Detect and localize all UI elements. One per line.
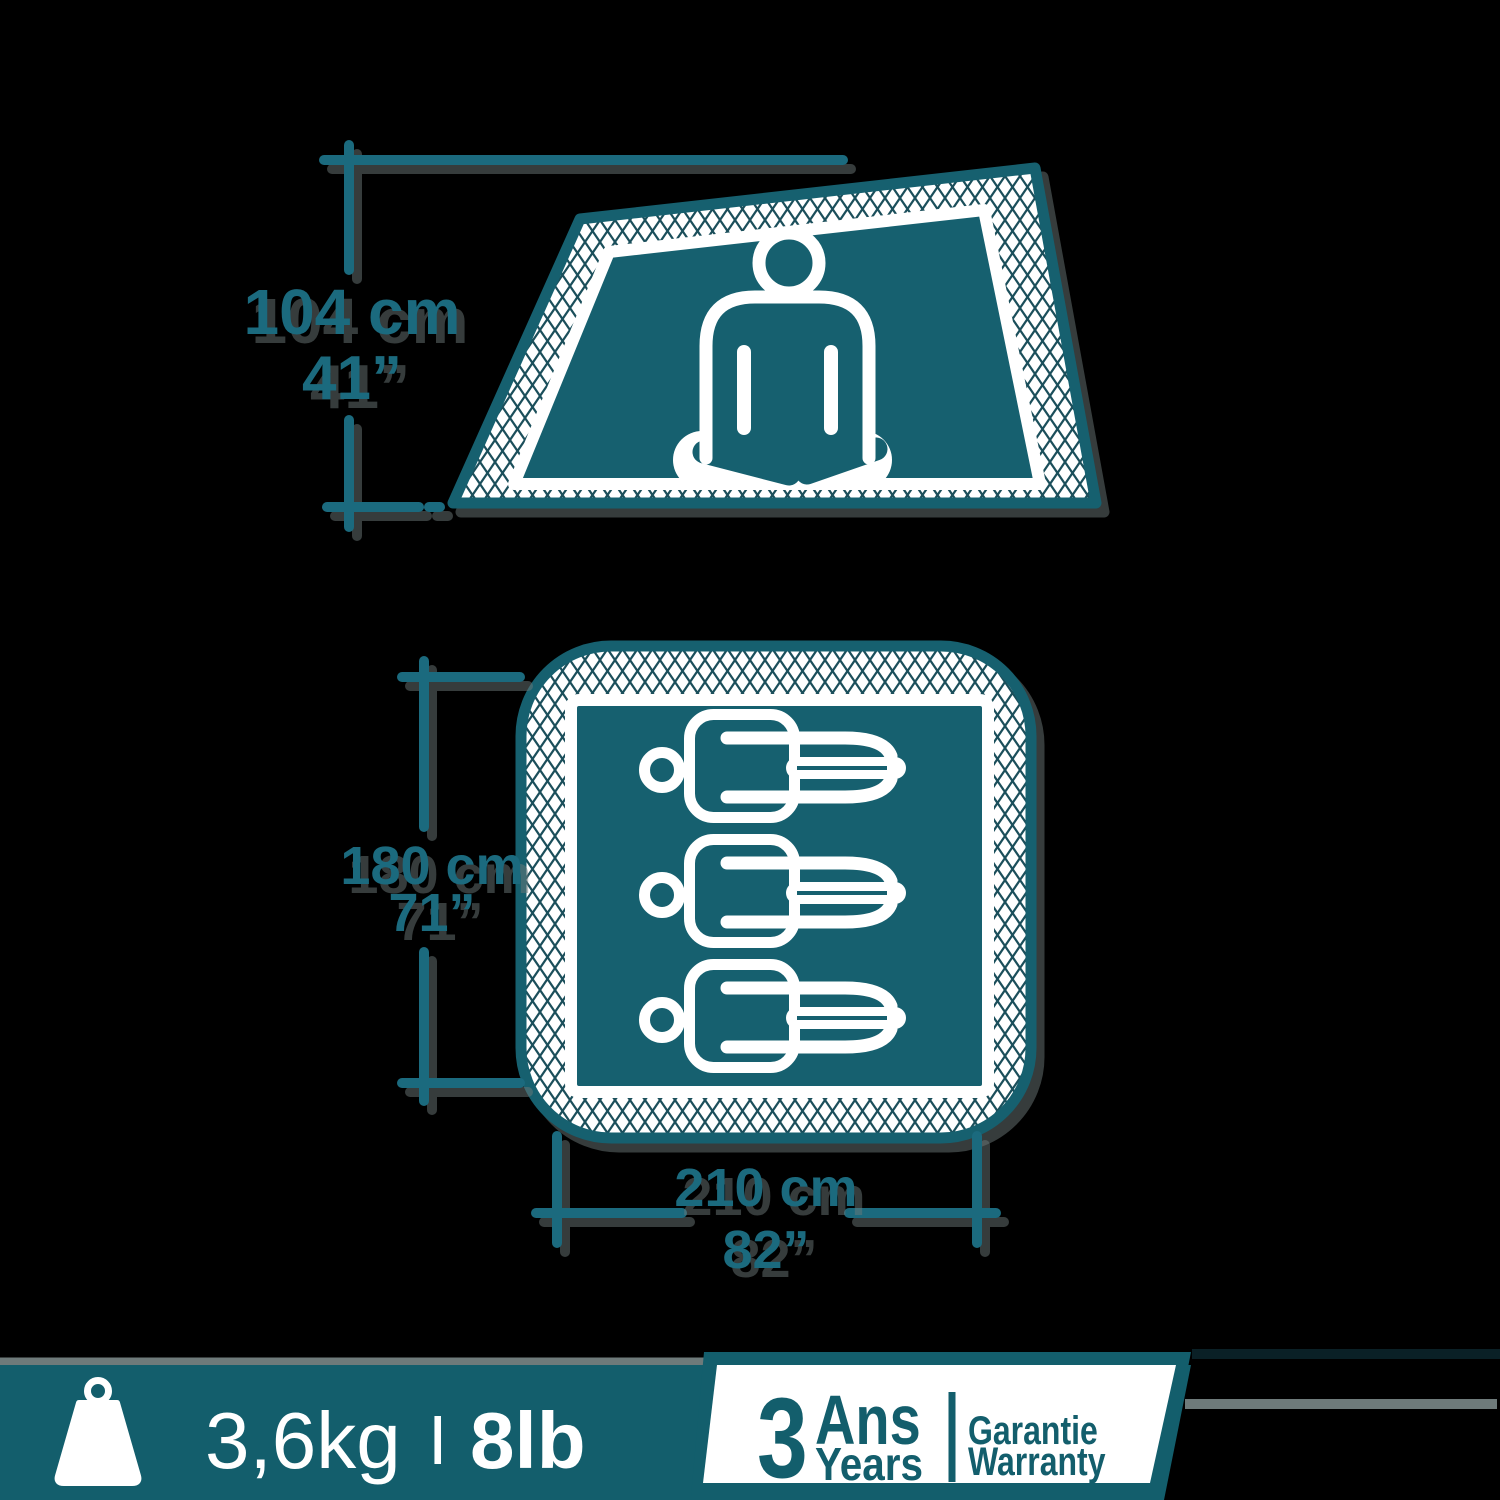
weight-metric: 3,6kg bbox=[205, 1396, 401, 1485]
product-spec-graphic: 104 cm 41” 180 cm 71” 210 cm 82” bbox=[0, 0, 1500, 1500]
weight-labels: 3,6kg I 8lb bbox=[205, 1396, 586, 1485]
warranty-unit-en: Years bbox=[815, 1440, 923, 1491]
floor-inner-area bbox=[571, 700, 988, 1092]
floor-length-metric: 210 cm bbox=[674, 1158, 857, 1218]
right-gray-line bbox=[1185, 1399, 1497, 1409]
tent-height-metric: 104 cm bbox=[243, 276, 460, 348]
floor-length-imperial: 82” bbox=[722, 1220, 809, 1280]
product-spec-sheet: 104 cm 41” 180 cm 71” 210 cm 82” bbox=[0, 0, 1500, 1500]
banner-top-shadow-line bbox=[0, 1358, 706, 1366]
right-dark-line bbox=[1192, 1349, 1500, 1359]
floor-width-imperial: 71” bbox=[388, 883, 475, 943]
warranty-word-en: Warranty bbox=[968, 1439, 1106, 1484]
warranty-duration: 3 bbox=[757, 1374, 808, 1500]
weight-imperial: 8lb bbox=[470, 1396, 586, 1485]
tent-height-imperial: 41” bbox=[302, 344, 402, 413]
weight-separator: I bbox=[428, 1401, 447, 1479]
warranty-badge: 3 Ans Years Garantie Warranty bbox=[691, 1352, 1191, 1500]
floor-plan bbox=[521, 646, 1031, 1138]
